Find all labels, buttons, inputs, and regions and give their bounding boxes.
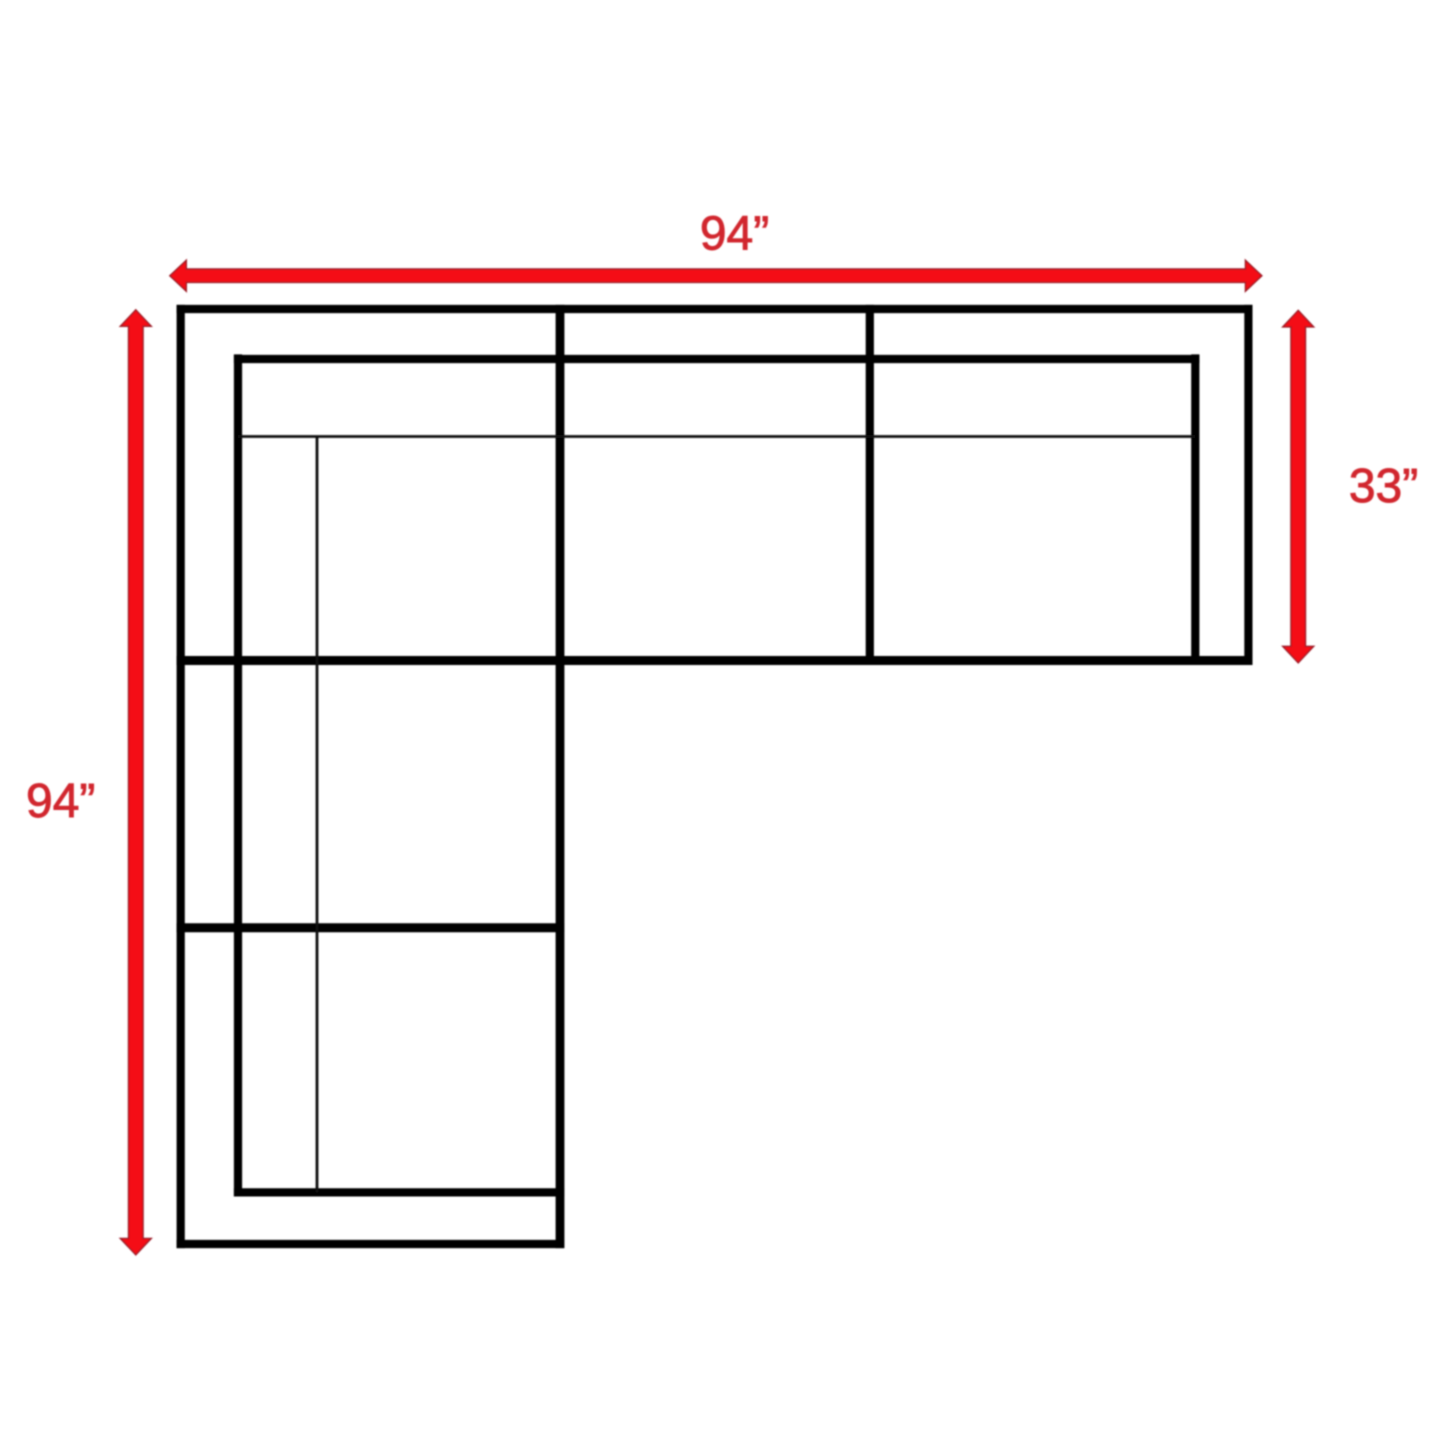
svg-text:94”: 94” <box>700 208 769 261</box>
svg-text:94”: 94” <box>26 775 95 828</box>
svg-text:33”: 33” <box>1349 460 1418 513</box>
